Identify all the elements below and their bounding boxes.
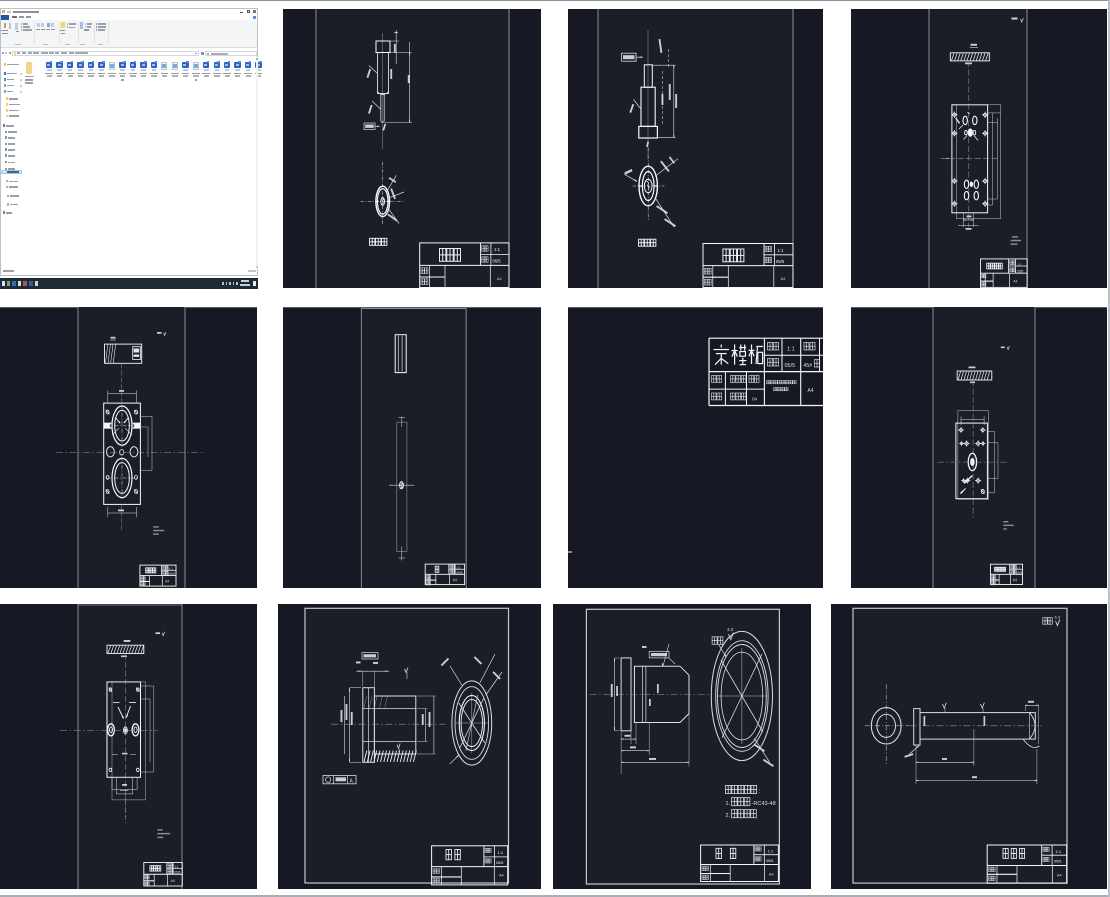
svg-text:A4: A4 — [1013, 578, 1017, 582]
svg-text:A4: A4 — [1013, 279, 1017, 283]
svg-text:05/5: 05/5 — [456, 571, 462, 575]
svg-text:1.: 1. — [725, 801, 730, 807]
svg-text:05/5: 05/5 — [493, 258, 502, 263]
svg-text:2.: 2. — [725, 813, 730, 819]
svg-text:A4: A4 — [781, 277, 786, 281]
svg-text:A4: A4 — [453, 578, 457, 582]
svg-text:1:1: 1:1 — [787, 347, 795, 353]
svg-text:6.3: 6.3 — [1055, 615, 1061, 620]
svg-text:1:1: 1:1 — [494, 247, 501, 252]
svg-text:1:1: 1:1 — [498, 850, 504, 855]
svg-text:45#: 45# — [804, 363, 813, 369]
svg-text:1:1: 1:1 — [1016, 566, 1021, 570]
svg-text:-RC43-48: -RC43-48 — [752, 801, 776, 807]
svg-text:05/5: 05/5 — [1054, 860, 1061, 864]
svg-text:05/5: 05/5 — [766, 859, 773, 863]
svg-text:05/5: 05/5 — [776, 259, 785, 264]
svg-text:A4: A4 — [808, 388, 814, 394]
svg-text:04: 04 — [752, 397, 758, 402]
svg-text:05/5: 05/5 — [169, 572, 175, 576]
svg-text:05/5: 05/5 — [1017, 270, 1023, 274]
svg-text:A4: A4 — [497, 277, 502, 281]
svg-text:1:1: 1:1 — [456, 566, 461, 570]
svg-text:1:1: 1:1 — [174, 865, 179, 869]
svg-text:3.2: 3.2 — [727, 627, 734, 632]
svg-text:05/5: 05/5 — [174, 871, 180, 875]
svg-text:05/5: 05/5 — [496, 861, 503, 865]
svg-text:1:1: 1:1 — [1017, 263, 1022, 267]
svg-text:A4: A4 — [1057, 873, 1062, 877]
svg-text:05/5: 05/5 — [1016, 571, 1022, 575]
svg-text:A4: A4 — [165, 579, 169, 583]
svg-text:A4: A4 — [171, 879, 175, 883]
svg-text:1:1: 1:1 — [768, 848, 774, 853]
svg-text:1:1: 1:1 — [778, 248, 785, 253]
svg-text:1:1: 1:1 — [1056, 849, 1062, 854]
svg-text:05/5: 05/5 — [785, 363, 796, 369]
svg-text:A4: A4 — [769, 873, 774, 877]
svg-text:A4: A4 — [499, 874, 504, 878]
svg-text:1:1: 1:1 — [169, 567, 174, 571]
